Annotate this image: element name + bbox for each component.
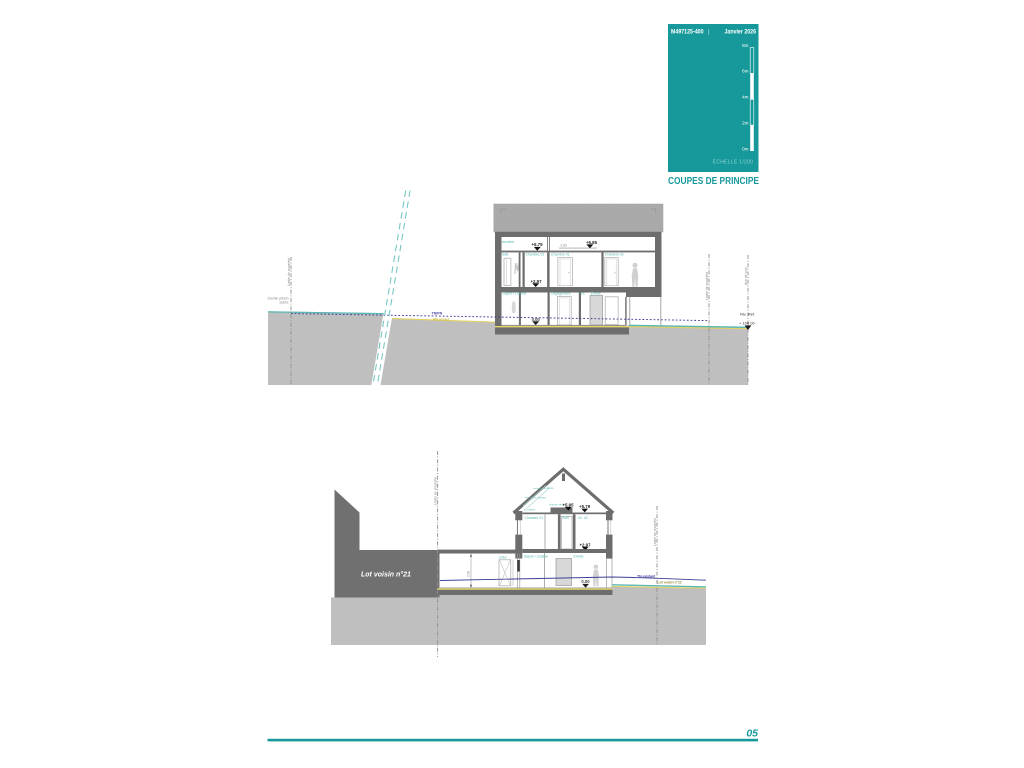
svg-text:COUPES DE PRINCIPE: COUPES DE PRINCIPE: [668, 176, 759, 187]
svg-text:0.00: 0.00: [581, 579, 590, 584]
svg-text:TN/PN: TN/PN: [432, 312, 443, 316]
svg-text:cellier: cellier: [499, 555, 508, 559]
svg-text:Entrée: Entrée: [591, 292, 601, 296]
svg-text:combles: combles: [524, 507, 536, 511]
svg-text:PN projet: PN projet: [433, 317, 450, 321]
svg-text:8m: 8m: [742, 43, 749, 48]
svg-text:Entrée: Entrée: [574, 554, 584, 558]
svg-text:ECHELLE 1/200: ECHELLE 1/200: [713, 159, 754, 165]
svg-text:Chambre 01: Chambre 01: [525, 516, 544, 520]
svg-text:Niv. Réf.: Niv. Réf.: [740, 312, 755, 317]
svg-text:M497125-400: M497125-400: [671, 30, 704, 36]
svg-text:public: public: [280, 301, 289, 305]
svg-text:4m: 4m: [742, 95, 749, 100]
svg-text:SdB: SdB: [502, 253, 509, 257]
svg-text:Limite de propriété: Limite de propriété: [433, 477, 437, 505]
svg-text:Séjour / Cuisine: Séjour / Cuisine: [524, 554, 548, 558]
svg-text:Chambre 03: Chambre 03: [605, 253, 624, 257]
svg-text:wc: wc: [580, 292, 584, 296]
svg-text:+2.97: +2.97: [579, 542, 591, 547]
svg-text:Limite de propriété: Limite de propriété: [287, 258, 291, 286]
svg-text:TN existant: TN existant: [637, 575, 656, 579]
svg-text:Chambre 01: Chambre 01: [551, 253, 570, 257]
svg-text:Limite de propriété: Limite de propriété: [653, 518, 657, 546]
svg-text:2.60: 2.60: [561, 244, 568, 248]
svg-text:+2.97: +2.97: [530, 279, 542, 284]
svg-text:Lot voisin n°21: Lot voisin n°21: [361, 571, 411, 579]
svg-text:0m: 0m: [742, 146, 749, 151]
svg-text:Axe de voie: Axe de voie: [744, 267, 748, 285]
svg-text:2.06: 2.06: [467, 571, 471, 577]
svg-text:Limite de propriété: Limite de propriété: [705, 272, 709, 300]
svg-text:6m: 6m: [742, 69, 749, 74]
svg-text:Ch. 02: Ch. 02: [578, 516, 588, 520]
svg-text:+5.79: +5.79: [531, 242, 543, 247]
svg-text:Chambre 02: Chambre 02: [526, 253, 545, 257]
svg-text:2m: 2m: [742, 120, 749, 125]
svg-text:Séjour / Cuisine: Séjour / Cuisine: [503, 292, 527, 296]
svg-text:Lot voisin n°22: Lot voisin n°22: [658, 581, 682, 585]
svg-text:Janvier 2026: Janvier 2026: [725, 30, 757, 36]
svg-text:acrotère: acrotère: [502, 240, 515, 244]
svg-text:SdB: SdB: [562, 516, 569, 520]
svg-text:+5.79: +5.79: [579, 504, 591, 509]
svg-text:Dégagement: Dégagement: [551, 292, 570, 296]
svg-text:+5.95: +5.95: [562, 502, 574, 507]
svg-text:+ 100.00: + 100.00: [739, 320, 755, 325]
svg-text:05: 05: [746, 728, 758, 740]
